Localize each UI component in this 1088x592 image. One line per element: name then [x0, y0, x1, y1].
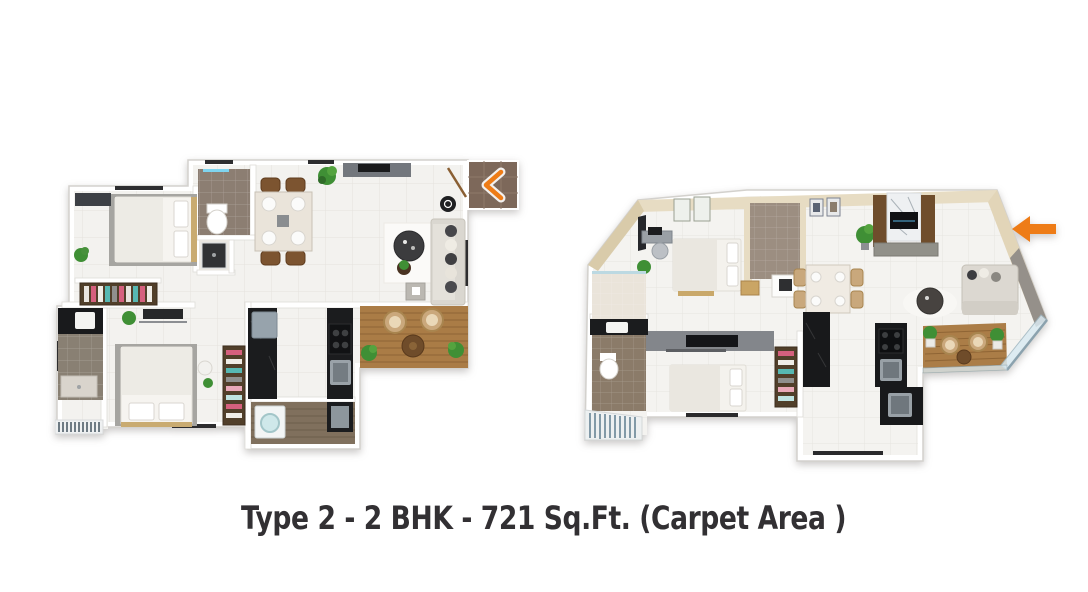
bedroom-bottom [670, 365, 746, 417]
bathroom-left [590, 271, 648, 411]
wood-deck-balcony [360, 306, 468, 368]
page: { "caption": { "text": "Type 2 - 2 BHK -… [0, 0, 1088, 592]
tall-wardrobe [223, 346, 245, 425]
tv-wall-band [640, 331, 774, 352]
clothes-wardrobe [775, 347, 797, 407]
caption: Type 2 - 2 BHK - 721 Sq.Ft. (Carpet Area… [0, 499, 1088, 537]
hall-wardrobe [80, 283, 157, 305]
arrow-left-icon [1012, 216, 1056, 242]
floor-plan-top-view [55, 156, 520, 456]
utility-balcony [251, 402, 355, 444]
floor-plan-isometric-view [578, 183, 1060, 465]
plan-caption-text: Type 2 - 2 BHK - 721 Sq.Ft. (Carpet Area… [241, 499, 846, 537]
